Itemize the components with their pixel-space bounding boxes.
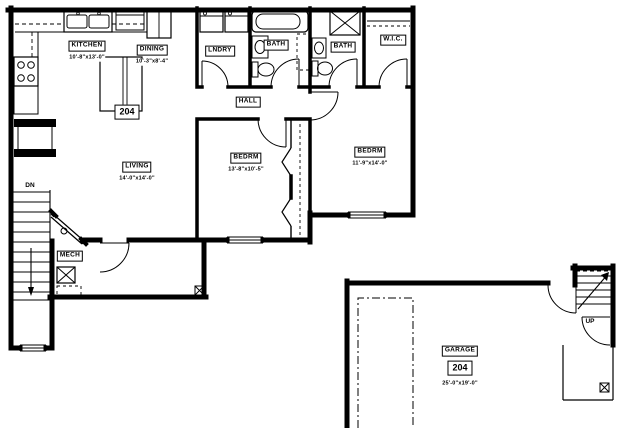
- furnace-icon: [57, 267, 75, 283]
- range-icon: [14, 57, 38, 86]
- dryer-icon: [225, 11, 248, 32]
- kitchen-dims: 10'-8"x13'-0": [69, 55, 105, 62]
- doors: [51, 59, 610, 345]
- washer-icon: [200, 11, 223, 32]
- bath-hall-sink-icon: [312, 38, 326, 58]
- kitchen-label: KITCHEN: [69, 41, 106, 52]
- laundry-label: LNDRY: [205, 46, 235, 57]
- bath-hall-label: BATH: [331, 42, 356, 53]
- bedroom-closet: [282, 119, 300, 240]
- garage-elements: [358, 298, 613, 428]
- bath-main-toilet-icon: [252, 62, 274, 77]
- bedroom-right-dims: 11'-9"x14'-0": [352, 161, 387, 168]
- refrigerator-icon: [147, 11, 171, 38]
- living-label: LIVING: [122, 162, 151, 173]
- laundry-fixtures: [200, 11, 248, 32]
- bedroom-left-window: [227, 237, 263, 243]
- mech-fixtures: [57, 267, 204, 296]
- stairs-down: [13, 190, 52, 300]
- bedroom-right-window: [348, 212, 386, 218]
- base-cabinet: [14, 86, 38, 114]
- garage-label: GARAGE: [442, 346, 478, 357]
- unit-number-badge: 204: [114, 105, 139, 120]
- wic-label: W.I.C.: [380, 35, 406, 46]
- door-swing-arcs: [100, 59, 610, 345]
- shower-icon: [330, 11, 360, 35]
- floor-plan-drawing: [0, 0, 626, 428]
- bedroom-left-dims: 13'-8"x10'-5": [228, 167, 264, 174]
- bedroom-right-label: BEDRM: [354, 147, 385, 158]
- fireplace-icon: [14, 119, 56, 157]
- floor-above-dashdot: [358, 298, 413, 428]
- meter-marker-icon: [600, 383, 609, 392]
- dining-label: DINING: [137, 45, 168, 56]
- door-leaves: [100, 59, 610, 317]
- floor-plan: KITCHEN 10'-8"x13'-0" DINING 10'-3"x8'-4…: [0, 0, 626, 428]
- garage-unit-badge: 204: [447, 361, 472, 376]
- fireplace-sides: [18, 127, 52, 149]
- bathtub-icon: [252, 11, 308, 32]
- kitchen-fixtures: [14, 11, 171, 157]
- bath-hall-toilet-icon: [312, 61, 333, 76]
- kitchen-sink-icon: [64, 11, 112, 32]
- mech-label: MECH: [57, 251, 83, 262]
- stairs-down-label: DN: [25, 182, 34, 190]
- living-dims: 14'-0"x14'-0": [119, 176, 155, 183]
- entry-window: [20, 345, 46, 351]
- bedroom-left-label: BEDRM: [230, 153, 261, 164]
- bath-main-label: BATH: [264, 40, 289, 51]
- hall-label: HALL: [236, 97, 261, 108]
- stairs-up-label: UP: [585, 318, 594, 326]
- stairs-up: [576, 271, 611, 309]
- dishwasher-icon: [116, 11, 144, 30]
- dining-dims: 10'-3"x8'-4": [136, 59, 168, 66]
- wic-shelving: [367, 21, 410, 26]
- garage-dims: 25'-0"x19'-0": [442, 381, 478, 388]
